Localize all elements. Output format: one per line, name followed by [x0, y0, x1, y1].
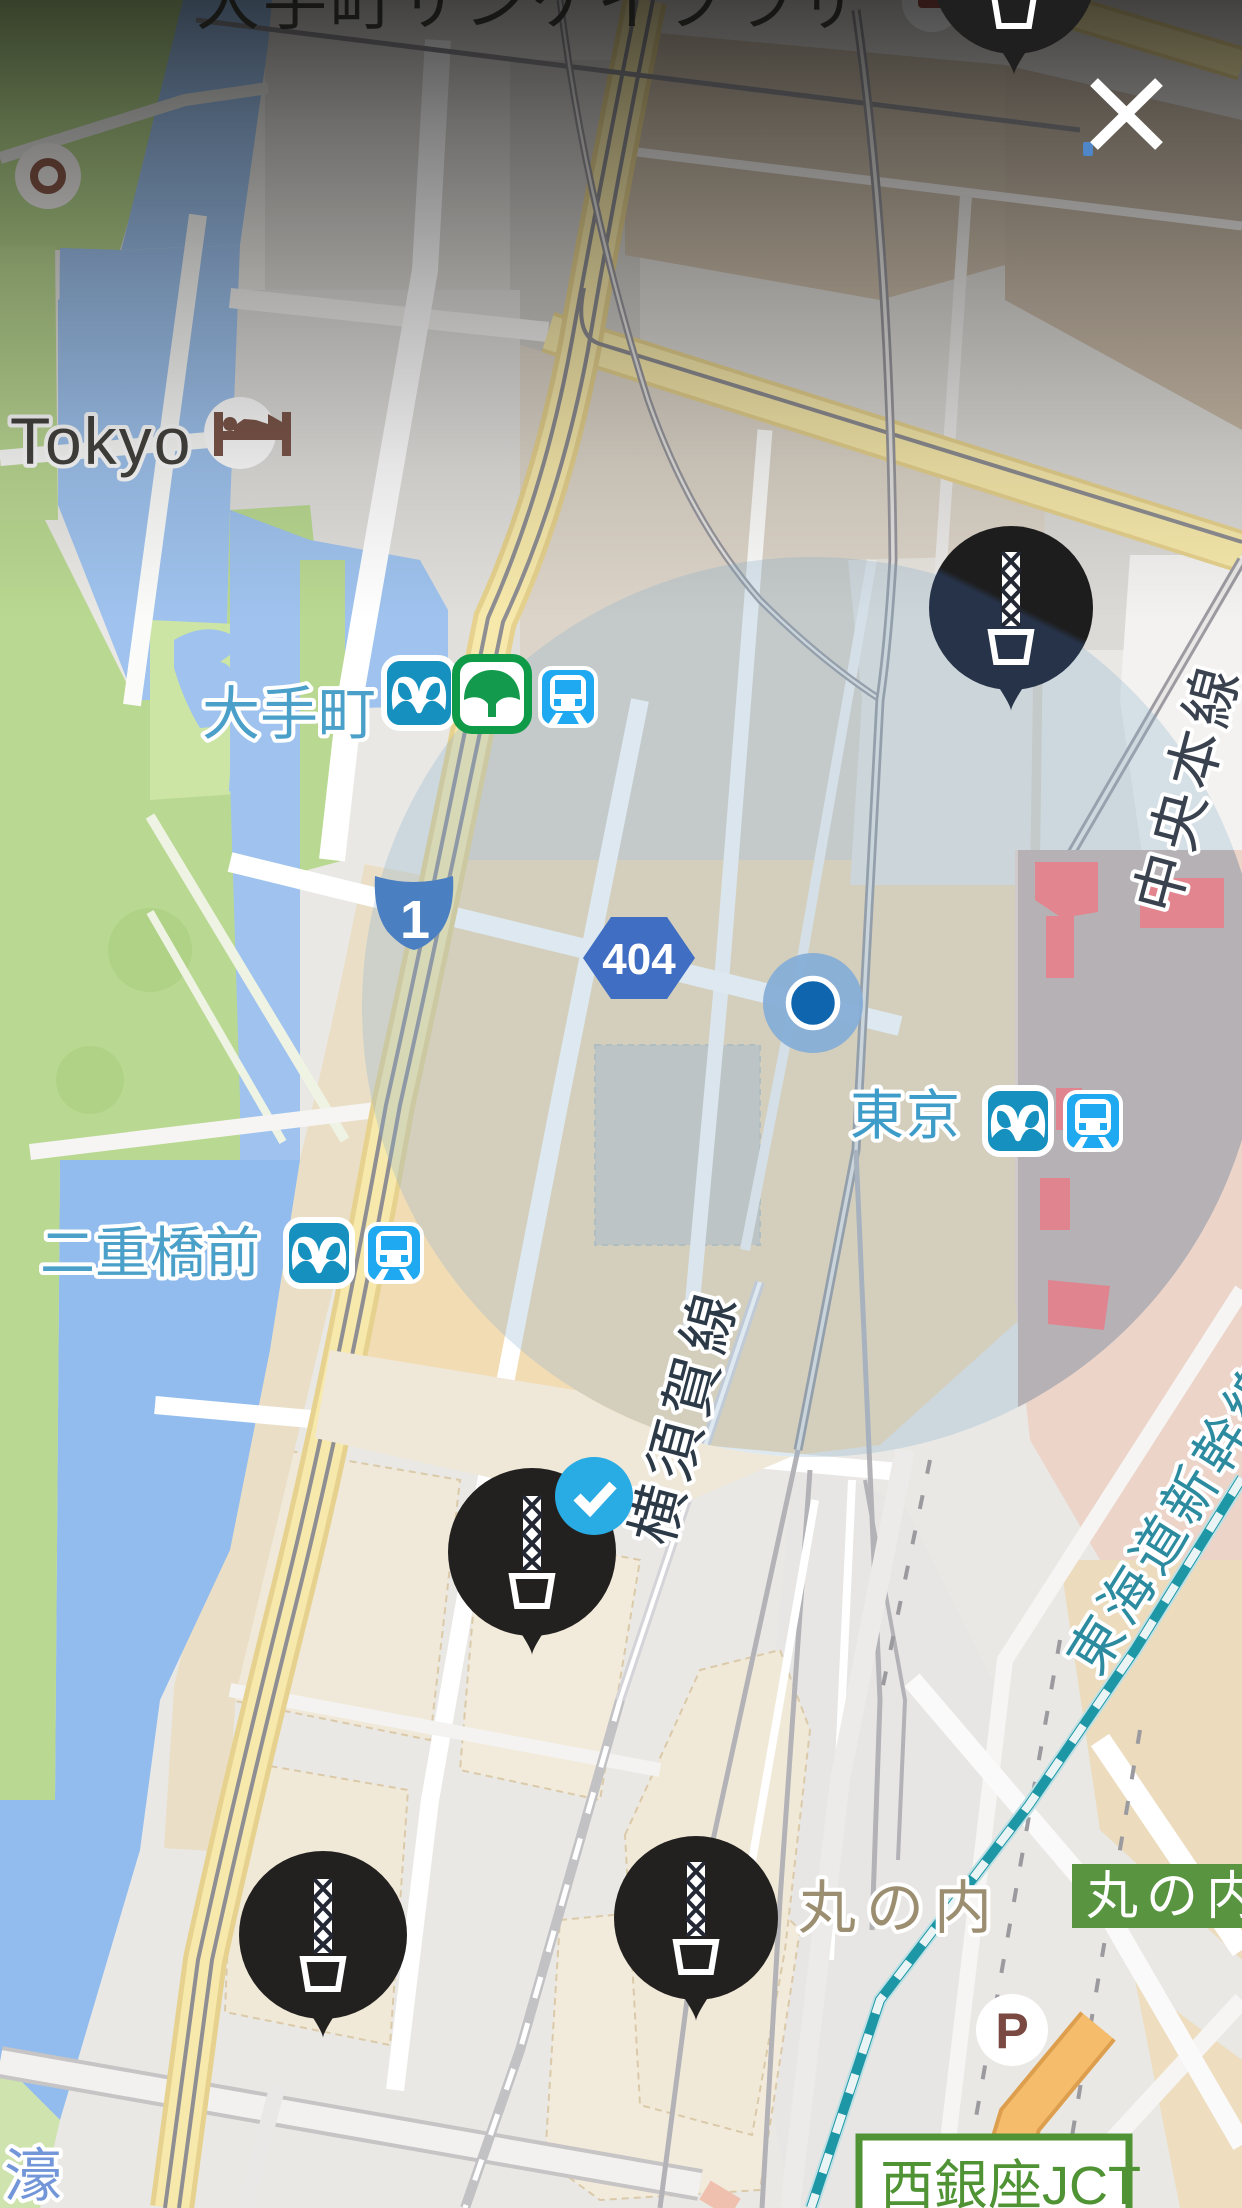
svg-text:二重橋前: 二重橋前	[40, 1222, 260, 1284]
svg-text:丸の内: 丸の内	[1086, 1868, 1242, 1926]
svg-text:西銀座JCT: 西銀座JCT	[880, 2156, 1141, 2208]
svg-text:濠: 濠	[4, 2144, 62, 2208]
svg-text:丸の内: 丸の内	[798, 1876, 1002, 1941]
svg-text:404: 404	[602, 935, 676, 984]
svg-text:東京: 東京	[850, 1086, 962, 1146]
svg-text:大手町: 大手町	[202, 682, 376, 747]
svg-text:1: 1	[400, 890, 430, 950]
svg-text:P: P	[995, 2003, 1028, 2059]
